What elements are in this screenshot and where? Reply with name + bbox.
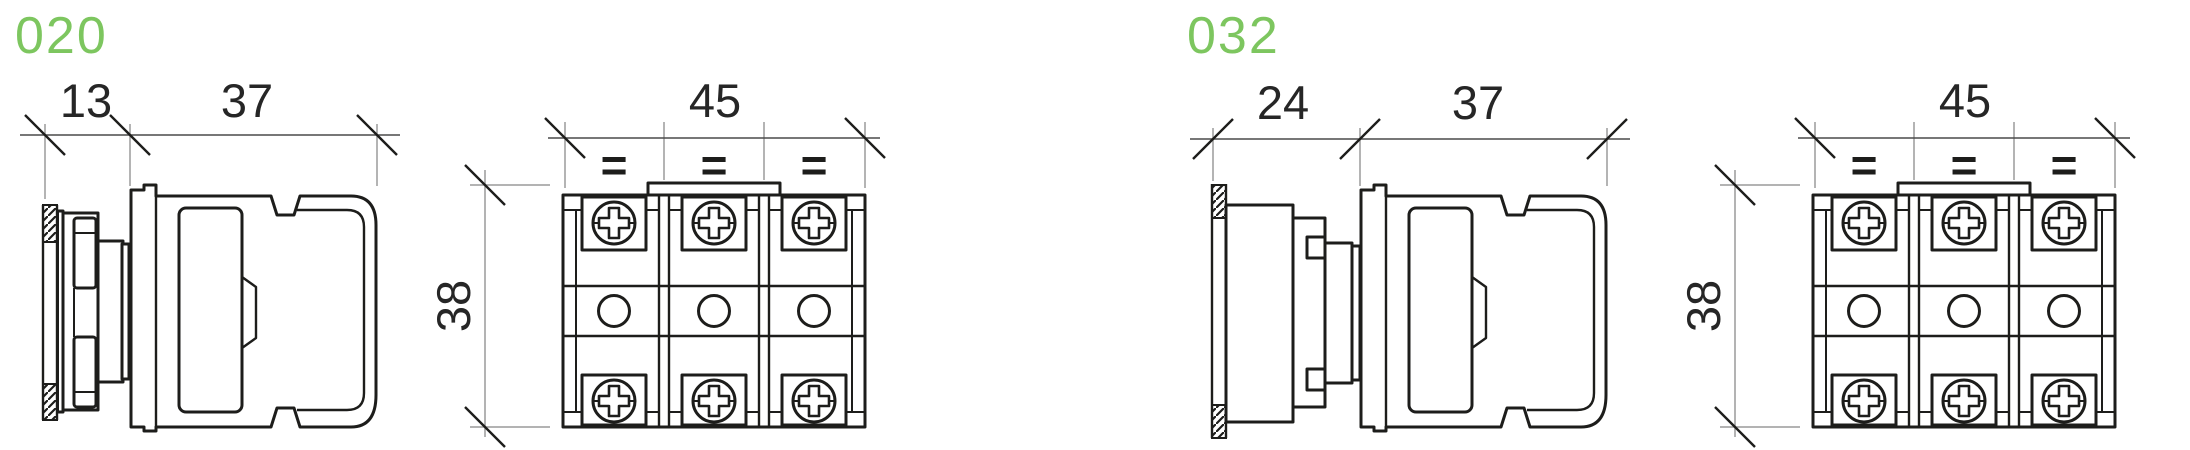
mounting-panel: [1212, 184, 1226, 438]
dim-body-length-label: 37: [1452, 76, 1504, 129]
side-view-032: 24 37: [1190, 76, 1630, 438]
dim-width-label: 45: [1939, 74, 1991, 127]
button-head-profile: [1226, 205, 1360, 422]
figure-020: 020 13 37: [15, 7, 885, 447]
terminal-mark: =: [2051, 139, 2078, 191]
figure-032: 032 24 37: [1187, 7, 2135, 447]
dim-height-label: 38: [1677, 280, 1730, 332]
terminal-mark: =: [701, 139, 728, 191]
dim-width-label: 45: [689, 74, 741, 127]
button-head-profile: [58, 211, 130, 412]
dim-depth-label: 13: [60, 74, 112, 127]
dim-height-label: 38: [427, 280, 480, 332]
contact-block-profile: [131, 185, 376, 431]
contact-block-profile: [1361, 185, 1606, 431]
variant-label-032: 032: [1187, 7, 1280, 65]
front-view-020: 45 38 = = =: [427, 74, 885, 447]
dim-body-length-label: 37: [221, 74, 273, 127]
terminal-mark: =: [1851, 139, 1878, 191]
terminal-mark: =: [601, 139, 628, 191]
terminal-mark: =: [801, 139, 828, 191]
mounting-panel: [43, 205, 57, 420]
drawing-svg: 020 13 37: [0, 0, 2190, 450]
front-view-032: 45 38 = = =: [1677, 74, 2135, 447]
technical-drawing-canvas: 020 13 37: [0, 0, 2190, 450]
variant-label-020: 020: [15, 7, 108, 65]
dim-depth-label: 24: [1257, 76, 1309, 129]
side-view-020: 13 37: [20, 74, 400, 431]
terminal-mark: =: [1951, 139, 1978, 191]
